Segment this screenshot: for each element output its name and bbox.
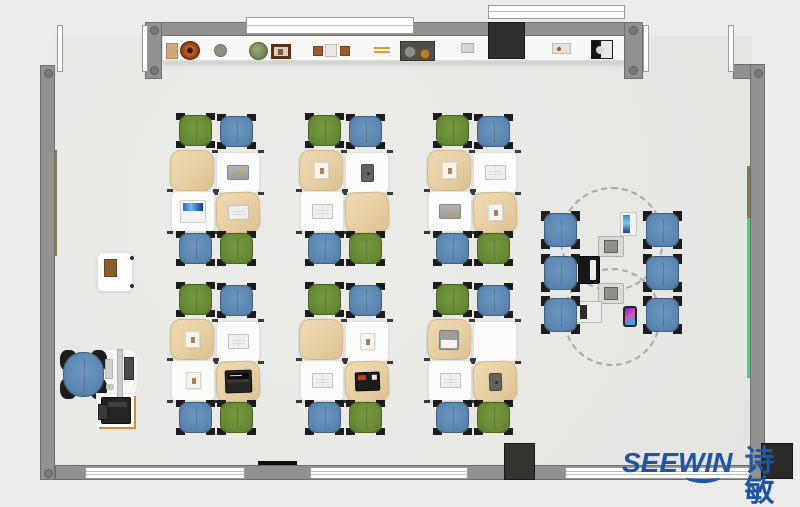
desk-cluster-6 xyxy=(427,283,517,433)
student-chair-green xyxy=(477,233,510,264)
student-desk xyxy=(215,360,260,403)
beam-line-bottom xyxy=(258,461,297,465)
student-chair-green xyxy=(179,284,212,315)
printer-icon xyxy=(101,397,131,424)
cabinet-item xyxy=(104,259,117,277)
book-open-icon xyxy=(485,165,506,180)
student-chair-blue xyxy=(308,233,341,264)
orange-sticks-icon xyxy=(374,47,390,54)
door-leaf-top-left-a xyxy=(57,25,63,72)
wall-left xyxy=(40,65,55,480)
lounge-chair-blue xyxy=(544,298,577,332)
lounge-chair-blue xyxy=(544,256,577,290)
device-case-icon xyxy=(598,236,624,257)
door-leaf-top-left-b xyxy=(142,25,148,72)
cabinet-knob xyxy=(130,284,134,288)
floor-plan-canvas: SEEWIN 诗敏 xyxy=(0,0,800,507)
laptop-open-white-icon xyxy=(439,329,459,349)
student-chair-blue xyxy=(308,402,341,433)
student-chair-blue xyxy=(477,116,510,147)
book-open-icon xyxy=(440,373,461,388)
small-tray-icon xyxy=(461,43,474,53)
student-chair-blue xyxy=(179,402,212,433)
student-chair-green xyxy=(349,233,382,264)
student-desk xyxy=(171,191,215,232)
student-desk xyxy=(345,321,389,362)
paper-icon xyxy=(186,372,201,389)
desk-cluster-4 xyxy=(170,283,260,433)
paper-icon xyxy=(487,204,503,222)
wall-bolt xyxy=(629,26,638,35)
student-chair-green xyxy=(308,284,341,315)
lounge-chair-blue xyxy=(646,213,679,247)
monitor-icon xyxy=(124,357,134,380)
paper-icon xyxy=(184,331,199,348)
teacher-chair xyxy=(63,352,104,397)
student-desk xyxy=(299,150,344,192)
student-desk xyxy=(216,152,260,193)
laptop-dark-icon xyxy=(354,372,380,392)
student-chair-green xyxy=(179,115,212,146)
student-chair-blue xyxy=(220,285,253,316)
student-desk xyxy=(216,321,260,362)
tablet-dark-icon xyxy=(488,372,502,390)
student-chair-blue xyxy=(349,285,382,316)
wall-bolt xyxy=(44,469,53,478)
wall-bolt xyxy=(754,69,763,78)
book-open-icon xyxy=(312,373,333,388)
plate-icon xyxy=(214,44,227,57)
mouse-icon xyxy=(106,384,114,390)
desk-cluster-1 xyxy=(170,114,260,264)
picture-frame-icon xyxy=(271,44,291,59)
student-desk xyxy=(300,191,344,232)
paper-icon xyxy=(360,333,375,350)
student-chair-green xyxy=(349,402,382,433)
logo-brand-text: SEEWIN xyxy=(622,449,732,477)
parts-tray-icon xyxy=(400,41,435,61)
wall-bolt xyxy=(629,66,638,75)
student-desk xyxy=(428,191,472,232)
book-open-icon xyxy=(312,204,333,219)
window-top-right xyxy=(488,5,625,19)
tablet-dark-icon xyxy=(361,164,374,182)
book-open-icon xyxy=(227,205,249,221)
jar-small-2-icon xyxy=(340,46,350,56)
pillar-bottom xyxy=(504,443,535,480)
laptop-open-blue-icon xyxy=(180,200,206,223)
mini-appliance-icon xyxy=(591,40,613,59)
laptop-gray-icon xyxy=(439,204,461,219)
tablet-icon xyxy=(620,212,637,236)
student-desk xyxy=(345,152,389,193)
student-desk xyxy=(300,360,344,401)
student-desk xyxy=(215,191,260,234)
student-chair-green xyxy=(436,284,469,315)
logo-cjk-text: 诗敏 xyxy=(744,447,800,507)
student-chair-green xyxy=(220,233,253,264)
student-desk xyxy=(427,150,472,192)
paper-icon xyxy=(313,162,328,179)
window-top xyxy=(246,17,414,34)
student-chair-blue xyxy=(349,116,382,147)
student-desk xyxy=(170,319,215,361)
student-chair-blue xyxy=(436,402,469,433)
jar-small-icon xyxy=(313,46,323,56)
lounge-chair-blue xyxy=(646,298,679,332)
clay-pot-icon xyxy=(180,41,200,60)
student-desk xyxy=(473,152,517,193)
keyboard-icon xyxy=(105,359,113,379)
lounge-chair-blue xyxy=(544,213,577,247)
laptop-gray-icon xyxy=(227,165,249,180)
wall-cabinet-black xyxy=(488,22,525,59)
door-leaf-top-right-a xyxy=(643,25,649,72)
student-desk xyxy=(472,191,517,234)
student-chair-green xyxy=(477,402,510,433)
student-chair-green xyxy=(220,402,253,433)
student-chair-green xyxy=(308,115,341,146)
student-desk xyxy=(170,150,215,192)
student-desk xyxy=(428,360,472,401)
desk-cluster-3 xyxy=(427,114,517,264)
wall-bolt xyxy=(44,69,53,78)
lounge-chair-blue xyxy=(646,256,679,290)
laptop-open-dark-icon xyxy=(224,370,252,394)
logo-swoosh-icon xyxy=(686,472,720,483)
smartphone-icon xyxy=(623,306,637,327)
student-chair-blue xyxy=(179,233,212,264)
wall-bolt xyxy=(150,66,159,75)
jar-large-icon xyxy=(325,44,337,57)
student-desk xyxy=(299,319,344,361)
wall-bolt xyxy=(150,26,159,35)
student-desk xyxy=(472,360,517,403)
door-leaf-top-right-b xyxy=(728,25,734,72)
student-desk xyxy=(473,321,517,362)
desk-tray-icon xyxy=(552,43,571,54)
student-chair-blue xyxy=(436,233,469,264)
student-chair-blue xyxy=(477,285,510,316)
student-chair-green xyxy=(436,115,469,146)
laptop-2-icon xyxy=(576,301,602,323)
laptop-icon xyxy=(578,256,600,284)
student-chair-blue xyxy=(220,116,253,147)
book-open-icon xyxy=(228,334,249,349)
desk-cluster-2 xyxy=(299,114,389,264)
desk-cluster-5 xyxy=(299,283,389,433)
student-desk xyxy=(427,319,472,361)
window-bottom-2 xyxy=(310,467,468,479)
storage-box-icon xyxy=(166,43,178,59)
paper-icon xyxy=(441,162,456,179)
student-desk xyxy=(344,191,389,234)
seewin-logo: SEEWIN 诗敏 xyxy=(622,449,800,507)
wall-right xyxy=(750,64,765,465)
student-desk xyxy=(344,360,389,403)
window-bottom-1 xyxy=(85,467,245,479)
potted-plant-icon xyxy=(249,42,268,60)
cabinet-knob xyxy=(130,256,134,260)
student-desk xyxy=(171,360,215,401)
privacy-panel xyxy=(117,349,123,398)
